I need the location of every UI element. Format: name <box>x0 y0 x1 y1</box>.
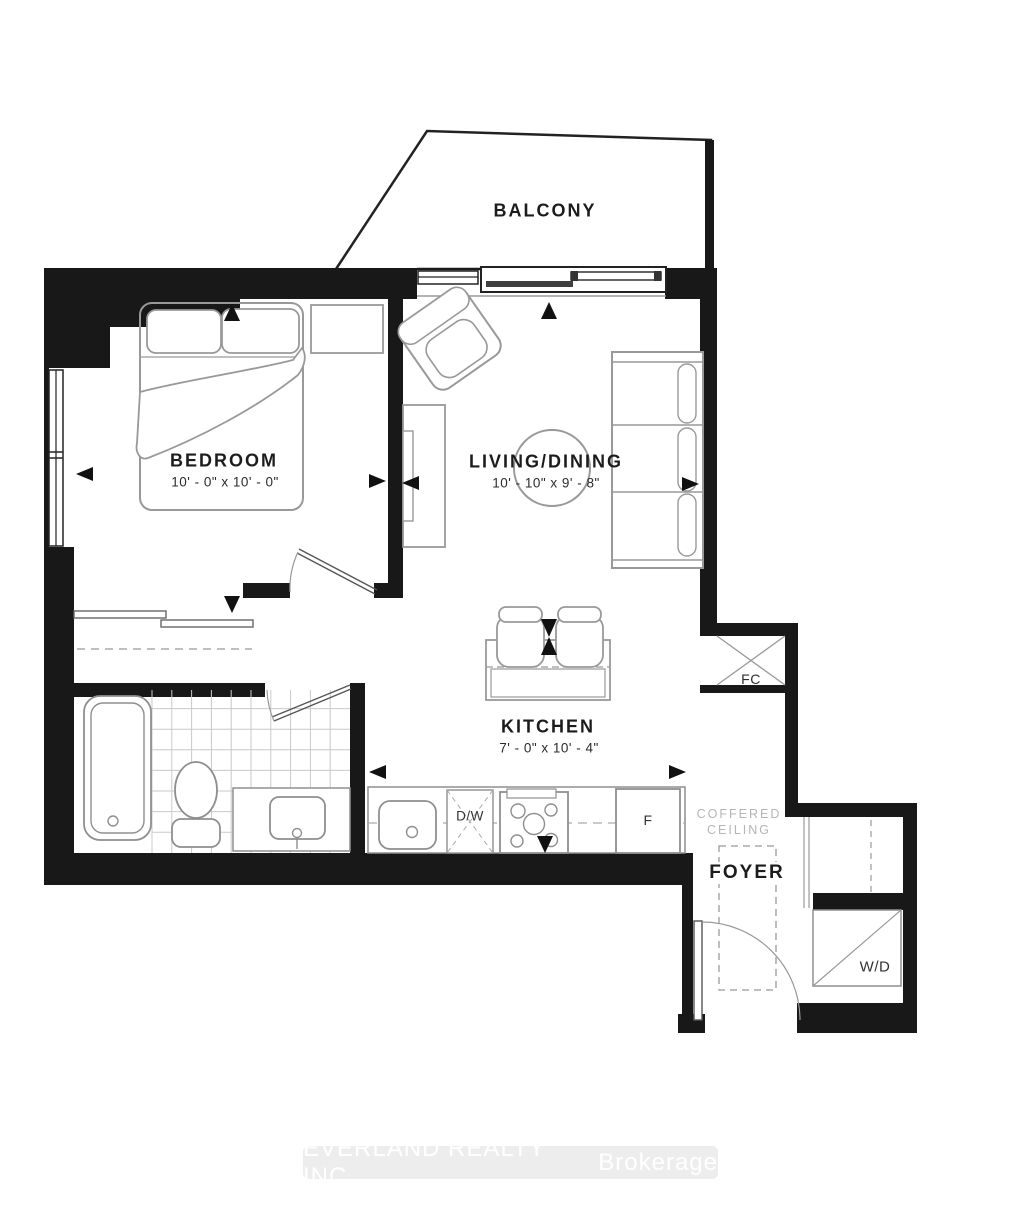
coffered-ceiling-label-line2: CEILING <box>707 823 771 837</box>
foyer-label: FOYER <box>706 862 787 884</box>
dw-label: D/W <box>456 809 484 824</box>
floorplan-drawing <box>0 0 1025 1228</box>
toilet <box>172 762 220 847</box>
sofa <box>612 352 703 568</box>
fridge-label: F <box>643 812 652 828</box>
tv-console <box>403 405 445 547</box>
bathroom-door <box>267 685 351 721</box>
bedroom-dresser <box>311 305 383 353</box>
bedroom-window <box>49 370 63 546</box>
living-dining-dimensions: 10' - 10" x 9' - 8" <box>492 476 600 491</box>
armchair <box>394 283 505 394</box>
stove <box>500 789 568 853</box>
coffered-ceiling-label-line1: COFFERED <box>697 807 782 821</box>
bedroom-label: BEDROOM <box>170 451 278 472</box>
floorplan-canvas: BALCONY BEDROOM 10' - 0" x 10' - 0" LIVI… <box>0 0 1025 1228</box>
watermark: EVERLAND REALTY INC. Brokerage <box>303 1146 718 1179</box>
kitchen-sink <box>379 801 436 849</box>
balcony-label: BALCONY <box>494 201 597 222</box>
bedroom-dimensions: 10' - 0" x 10' - 0" <box>171 475 279 490</box>
bathtub <box>84 696 151 840</box>
watermark-suffix: Brokerage <box>598 1149 718 1177</box>
blanket <box>137 348 305 459</box>
living-dining-label: LIVING/DINING <box>469 452 623 473</box>
fc-label: FC <box>741 671 761 687</box>
watermark-company: EVERLAND REALTY INC. <box>303 1135 576 1191</box>
bedroom-closet <box>74 611 253 649</box>
kitchen-dimensions: 7' - 0" x 10' - 4" <box>499 741 599 756</box>
bedroom-door <box>290 549 377 594</box>
vanity-sink <box>233 788 350 851</box>
kitchen-label: KITCHEN <box>501 717 595 738</box>
walls <box>44 268 917 1033</box>
entry-door <box>694 921 800 1020</box>
wd-label: W/D <box>860 959 891 976</box>
